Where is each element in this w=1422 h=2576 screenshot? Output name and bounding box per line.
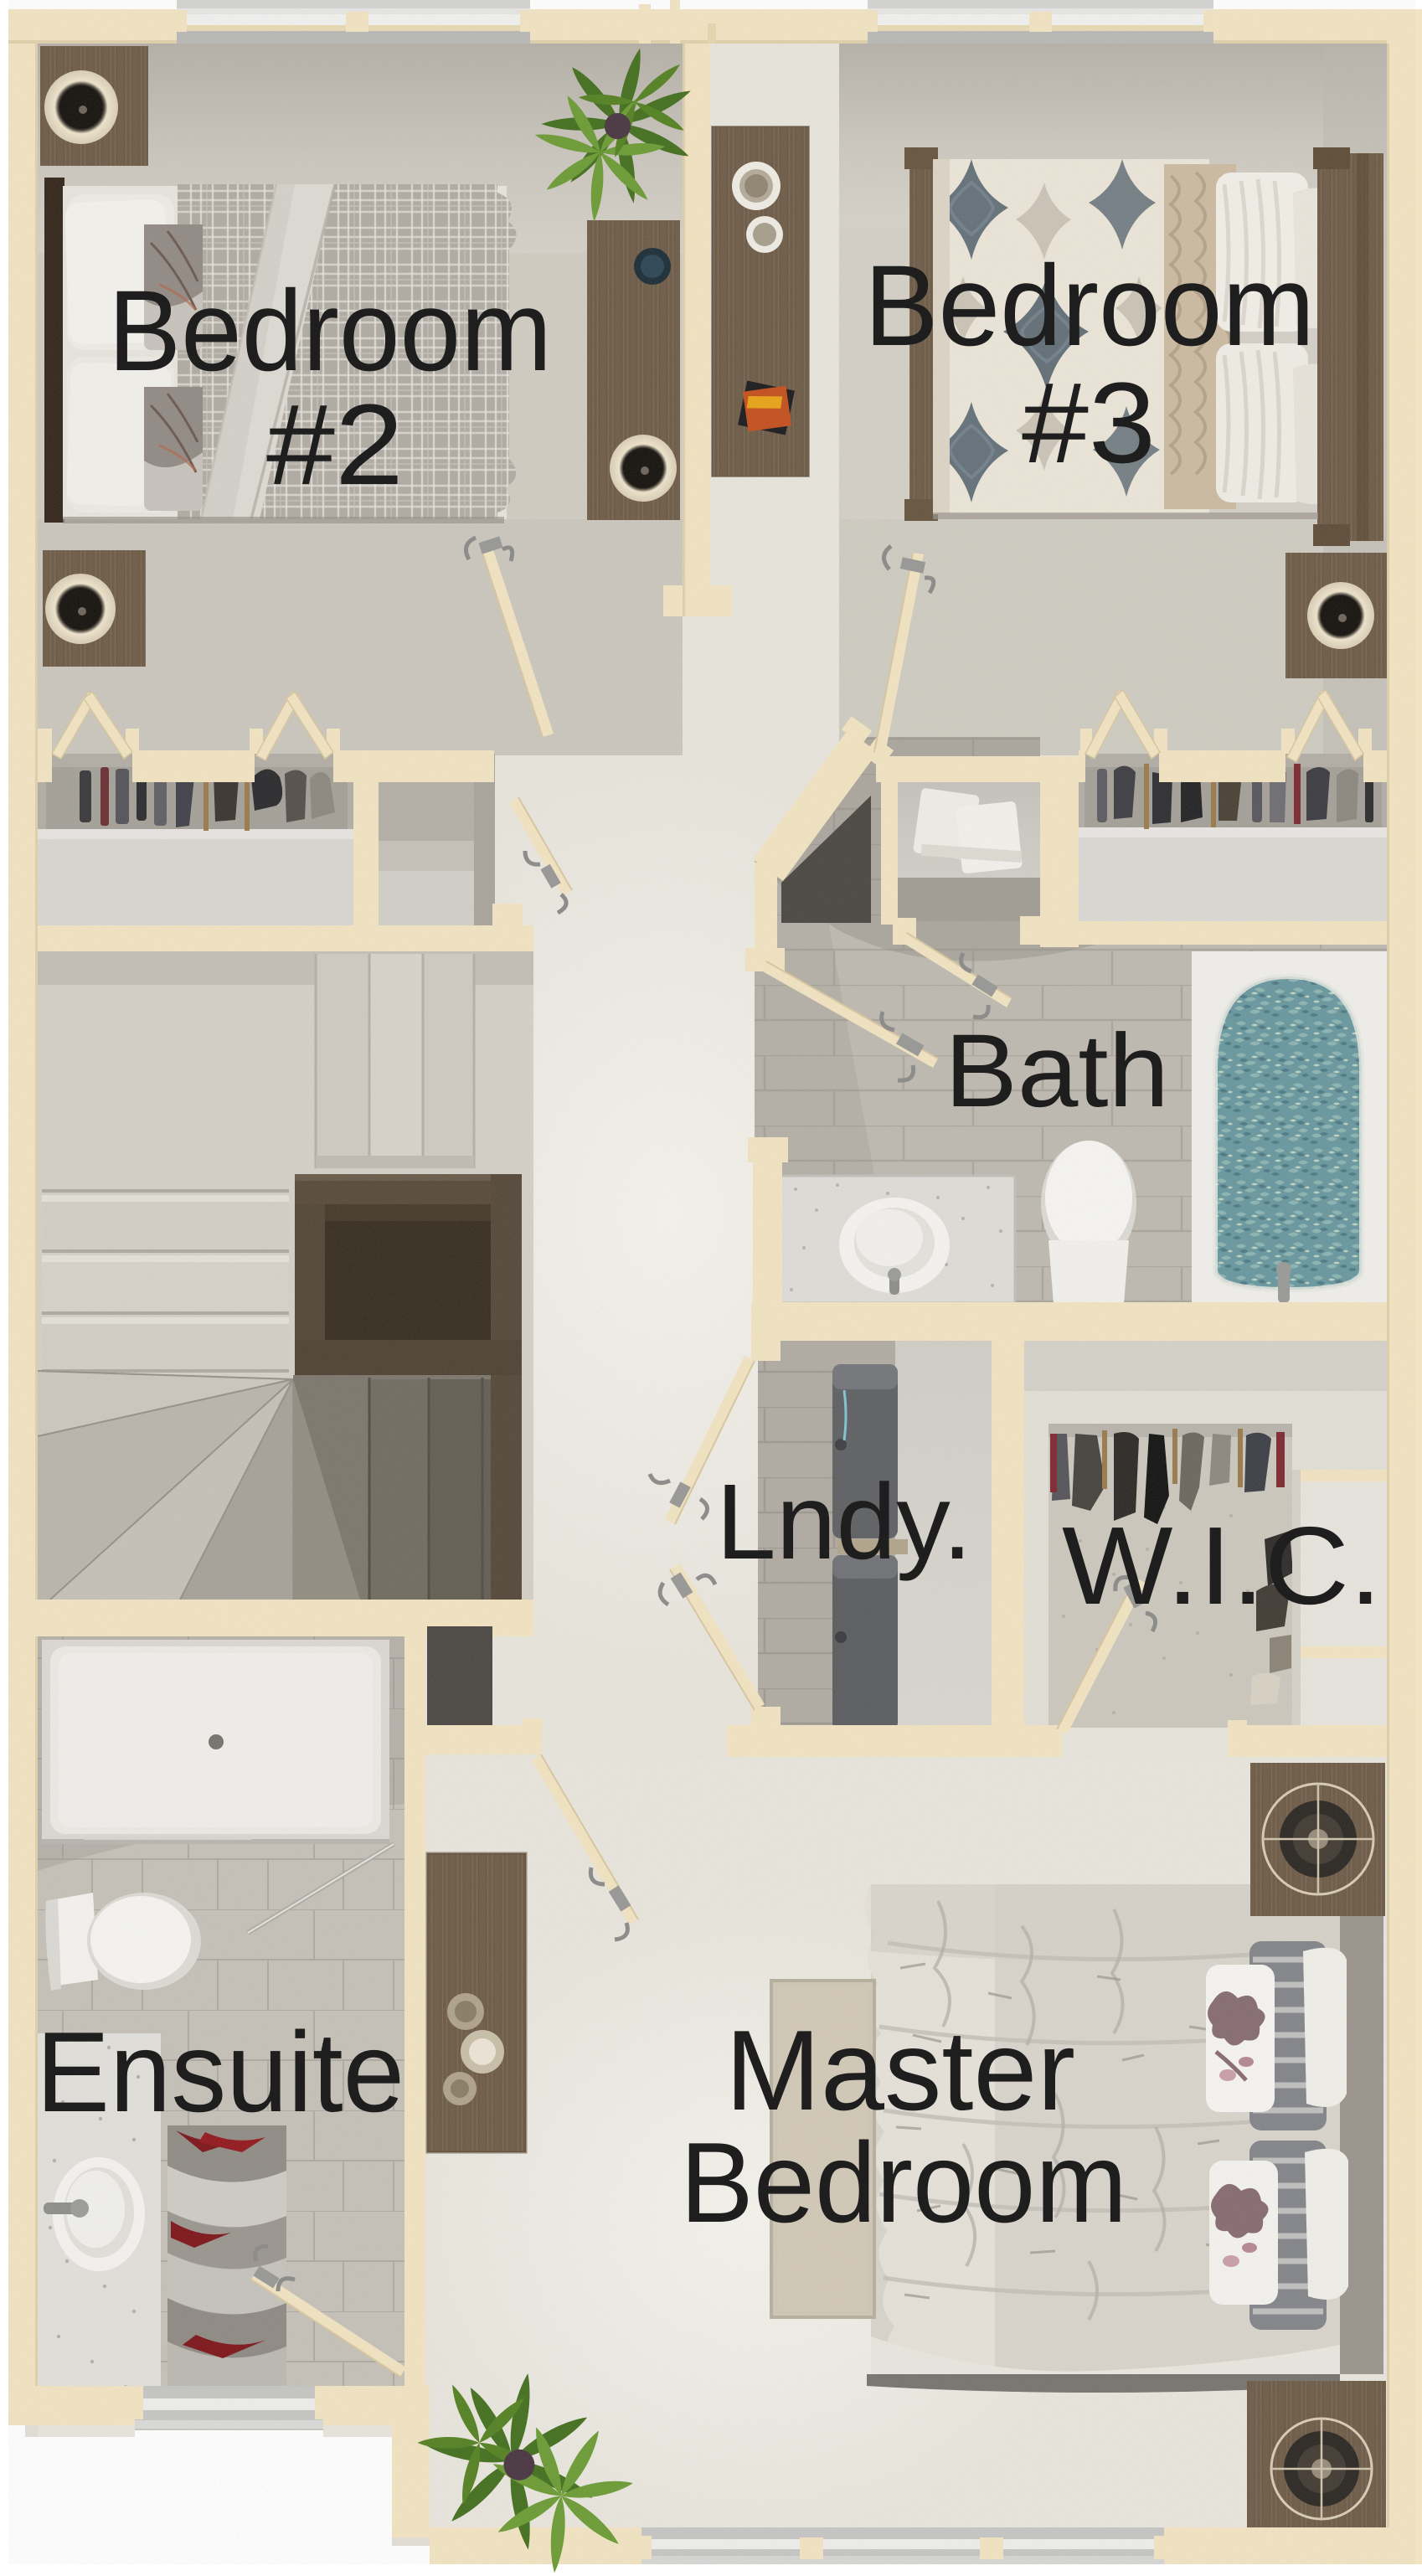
svg-text:Master: Master [725, 2007, 1075, 2134]
svg-text:Bath: Bath [945, 1013, 1169, 1129]
svg-text:W.I.C.: W.I.C. [1062, 1504, 1382, 1627]
svg-text:Bedroom: Bedroom [680, 2119, 1127, 2246]
svg-text:Lndy.: Lndy. [716, 1462, 972, 1582]
svg-text:#3: #3 [1022, 359, 1156, 487]
svg-text:#2: #2 [266, 381, 404, 509]
svg-text:Bedroom: Bedroom [108, 267, 552, 395]
svg-text:Ensuite: Ensuite [36, 2008, 404, 2136]
svg-text:Bedroom: Bedroom [864, 242, 1315, 370]
